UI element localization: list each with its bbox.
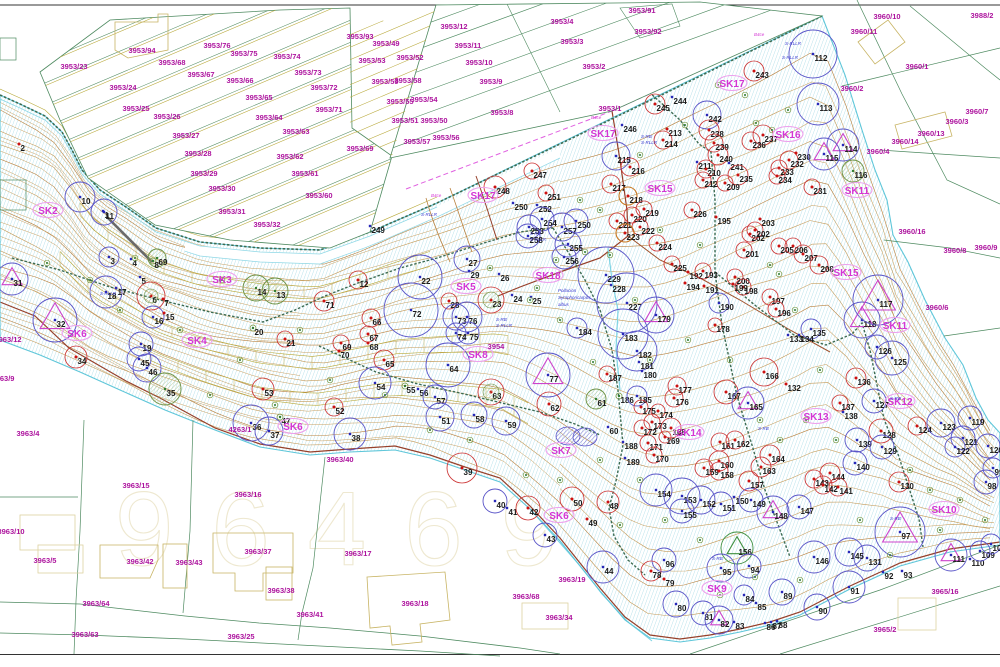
svg-text:SK4: SK4 bbox=[187, 336, 207, 347]
svg-text:3953/69: 3953/69 bbox=[346, 144, 373, 153]
svg-text:24: 24 bbox=[514, 295, 523, 304]
svg-text:3953/72: 3953/72 bbox=[310, 83, 337, 92]
svg-text:66: 66 bbox=[373, 318, 382, 327]
svg-text:36: 36 bbox=[253, 423, 262, 432]
svg-text:164: 164 bbox=[772, 455, 786, 464]
svg-text:213: 213 bbox=[669, 129, 683, 138]
svg-text:3953/63: 3953/63 bbox=[282, 127, 309, 136]
svg-text:256: 256 bbox=[566, 257, 580, 266]
svg-text:176: 176 bbox=[676, 398, 690, 407]
svg-text:146: 146 bbox=[816, 557, 830, 566]
svg-text:S-RLLR: S-RLLR bbox=[785, 41, 802, 46]
svg-text:54: 54 bbox=[377, 383, 386, 392]
svg-text:129: 129 bbox=[884, 447, 898, 456]
svg-text:3953/76: 3953/76 bbox=[203, 41, 230, 50]
svg-text:3963/19: 3963/19 bbox=[558, 575, 585, 584]
svg-text:SK10: SK10 bbox=[931, 505, 956, 516]
svg-text:SK14: SK14 bbox=[676, 428, 701, 439]
svg-text:125: 125 bbox=[894, 358, 908, 367]
svg-text:3953/28: 3953/28 bbox=[184, 149, 211, 158]
svg-text:138: 138 bbox=[845, 412, 859, 421]
svg-text:3953/67: 3953/67 bbox=[187, 70, 214, 79]
svg-text:34: 34 bbox=[78, 357, 87, 366]
svg-text:180: 180 bbox=[644, 371, 658, 380]
svg-text:162: 162 bbox=[737, 440, 751, 449]
svg-text:SK17: SK17 bbox=[470, 191, 495, 202]
svg-text:22: 22 bbox=[422, 277, 431, 286]
svg-text:72: 72 bbox=[413, 310, 422, 319]
svg-text:3953/62: 3953/62 bbox=[276, 152, 303, 161]
svg-text:60: 60 bbox=[610, 427, 619, 436]
svg-text:B4ce: B4ce bbox=[431, 193, 442, 198]
svg-text:3953/8: 3953/8 bbox=[491, 108, 514, 117]
svg-text:250: 250 bbox=[515, 203, 529, 212]
svg-text:117: 117 bbox=[880, 300, 893, 309]
svg-text:76: 76 bbox=[469, 317, 478, 326]
svg-text:3963/40: 3963/40 bbox=[326, 455, 353, 464]
svg-text:70: 70 bbox=[341, 351, 350, 360]
svg-text:228: 228 bbox=[613, 285, 627, 294]
svg-text:3953/60: 3953/60 bbox=[305, 191, 332, 200]
svg-text:3953/11: 3953/11 bbox=[455, 41, 482, 50]
svg-text:93: 93 bbox=[904, 571, 913, 580]
svg-text:209: 209 bbox=[727, 183, 741, 192]
svg-text:3963/9: 3963/9 bbox=[0, 374, 14, 383]
svg-text:212: 212 bbox=[705, 180, 719, 189]
svg-text:12: 12 bbox=[360, 280, 369, 289]
svg-text:114: 114 bbox=[845, 145, 858, 154]
svg-text:16: 16 bbox=[155, 317, 164, 326]
svg-text:SK16: SK16 bbox=[775, 130, 800, 141]
svg-text:249: 249 bbox=[372, 226, 386, 235]
svg-text:74: 74 bbox=[458, 333, 467, 342]
svg-text:SK3: SK3 bbox=[212, 275, 232, 286]
svg-text:3953/75: 3953/75 bbox=[230, 49, 257, 58]
svg-text:3963/16: 3963/16 bbox=[234, 490, 261, 499]
svg-text:3963/37: 3963/37 bbox=[244, 547, 271, 556]
svg-text:3963/42: 3963/42 bbox=[126, 557, 153, 566]
svg-text:3954: 3954 bbox=[488, 342, 506, 351]
svg-text:SK6: SK6 bbox=[283, 422, 303, 433]
svg-text:187: 187 bbox=[609, 374, 623, 383]
svg-text:83: 83 bbox=[736, 622, 745, 631]
svg-text:SK15: SK15 bbox=[833, 268, 858, 279]
svg-text:3953/66: 3953/66 bbox=[226, 76, 253, 85]
svg-text:123: 123 bbox=[943, 423, 957, 432]
svg-text:157: 157 bbox=[751, 481, 765, 490]
svg-text:3953/59: 3953/59 bbox=[371, 77, 398, 86]
svg-text:3953/91: 3953/91 bbox=[628, 6, 655, 15]
svg-text:130: 130 bbox=[901, 482, 915, 491]
svg-text:3953/51: 3953/51 bbox=[391, 116, 418, 125]
svg-text:177: 177 bbox=[679, 386, 693, 395]
svg-text:3953/56: 3953/56 bbox=[432, 133, 459, 142]
svg-text:108: 108 bbox=[993, 544, 1000, 553]
svg-text:SK15: SK15 bbox=[647, 184, 672, 195]
svg-text:3960/11: 3960/11 bbox=[851, 27, 878, 36]
svg-text:3960/13: 3960/13 bbox=[917, 129, 944, 138]
svg-text:SK18: SK18 bbox=[535, 271, 560, 282]
svg-text:3953/53: 3953/53 bbox=[358, 56, 385, 65]
svg-text:216: 216 bbox=[632, 167, 646, 176]
svg-text:SK9: SK9 bbox=[707, 584, 727, 595]
svg-text:215: 215 bbox=[618, 156, 632, 165]
svg-text:140: 140 bbox=[857, 463, 871, 472]
svg-text:S-RB: S-RB bbox=[496, 317, 507, 322]
svg-text:42: 42 bbox=[530, 508, 539, 517]
svg-text:3960/10: 3960/10 bbox=[873, 12, 900, 21]
svg-text:3963/63: 3963/63 bbox=[71, 630, 98, 639]
svg-text:3963/18: 3963/18 bbox=[401, 599, 428, 608]
svg-text:3953/3: 3953/3 bbox=[561, 37, 584, 46]
svg-text:3963/25: 3963/25 bbox=[227, 632, 254, 641]
svg-text:98: 98 bbox=[988, 482, 997, 491]
svg-text:69: 69 bbox=[159, 258, 168, 267]
svg-text:151: 151 bbox=[723, 504, 737, 513]
svg-text:3953/92: 3953/92 bbox=[634, 27, 661, 36]
svg-text:245: 245 bbox=[657, 104, 671, 113]
svg-text:S-RB: S-RB bbox=[641, 134, 652, 139]
svg-text:3953/50: 3953/50 bbox=[420, 116, 447, 125]
svg-text:223: 223 bbox=[627, 233, 641, 242]
svg-text:214: 214 bbox=[665, 140, 679, 149]
svg-text:S-RLLR: S-RLLR bbox=[641, 140, 658, 145]
svg-text:49: 49 bbox=[589, 519, 598, 528]
svg-text:SK7: SK7 bbox=[551, 446, 571, 457]
svg-text:64: 64 bbox=[450, 365, 459, 374]
svg-text:3963/43: 3963/43 bbox=[175, 558, 202, 567]
svg-text:190: 190 bbox=[721, 303, 735, 312]
svg-text:250: 250 bbox=[578, 221, 592, 230]
svg-text:3960/3: 3960/3 bbox=[946, 117, 969, 126]
svg-text:247: 247 bbox=[534, 171, 548, 180]
svg-text:26: 26 bbox=[501, 274, 510, 283]
svg-text:95: 95 bbox=[723, 568, 732, 577]
svg-text:92: 92 bbox=[885, 572, 894, 581]
svg-text:3963/15: 3963/15 bbox=[122, 481, 149, 490]
svg-text:183: 183 bbox=[625, 334, 639, 343]
svg-text:3953/26: 3953/26 bbox=[153, 112, 180, 121]
svg-text:3953/23: 3953/23 bbox=[60, 62, 87, 71]
svg-text:94: 94 bbox=[751, 566, 760, 575]
svg-text:163: 163 bbox=[763, 467, 777, 476]
svg-text:155: 155 bbox=[684, 511, 698, 520]
svg-text:S-RB: S-RB bbox=[890, 516, 901, 521]
svg-text:159: 159 bbox=[706, 468, 720, 477]
svg-text:S-RB: S-RB bbox=[712, 556, 723, 561]
svg-text:218: 218 bbox=[630, 196, 644, 205]
svg-text:3953/9: 3953/9 bbox=[480, 77, 503, 86]
svg-text:207: 207 bbox=[805, 254, 819, 263]
svg-text:112: 112 bbox=[815, 54, 828, 63]
svg-text:SK6: SK6 bbox=[67, 329, 87, 340]
svg-text:167: 167 bbox=[728, 392, 742, 401]
svg-text:3963/38: 3963/38 bbox=[267, 586, 294, 595]
svg-text:181: 181 bbox=[641, 362, 655, 371]
svg-text:144: 144 bbox=[832, 473, 846, 482]
svg-text:202: 202 bbox=[757, 230, 771, 239]
svg-text:137: 137 bbox=[842, 403, 856, 412]
svg-text:222: 222 bbox=[642, 227, 656, 236]
svg-text:20: 20 bbox=[255, 328, 264, 337]
svg-text:149: 149 bbox=[753, 500, 767, 509]
svg-text:25: 25 bbox=[533, 297, 542, 306]
svg-text:3960/9: 3960/9 bbox=[975, 243, 998, 252]
svg-text:3963/34: 3963/34 bbox=[545, 613, 573, 622]
svg-text:SK6: SK6 bbox=[549, 511, 569, 522]
svg-text:220: 220 bbox=[634, 215, 648, 224]
svg-text:21: 21 bbox=[287, 339, 296, 348]
svg-text:39: 39 bbox=[464, 468, 473, 477]
svg-text:195: 195 bbox=[718, 217, 732, 226]
svg-text:3953/52: 3953/52 bbox=[396, 53, 423, 62]
svg-text:57: 57 bbox=[437, 397, 446, 406]
svg-text:43: 43 bbox=[547, 535, 556, 544]
svg-text:96: 96 bbox=[666, 560, 675, 569]
svg-text:120: 120 bbox=[990, 446, 1000, 455]
svg-text:3953/49: 3953/49 bbox=[372, 39, 399, 48]
svg-text:78: 78 bbox=[653, 571, 662, 580]
svg-text:254: 254 bbox=[544, 219, 558, 228]
svg-text:3960/4: 3960/4 bbox=[867, 147, 891, 156]
svg-text:3963/12: 3963/12 bbox=[0, 335, 22, 344]
svg-text:53: 53 bbox=[265, 389, 274, 398]
svg-text:3953/55: 3953/55 bbox=[386, 97, 413, 106]
svg-text:11: 11 bbox=[106, 212, 115, 221]
svg-text:65: 65 bbox=[386, 360, 395, 369]
svg-text:51: 51 bbox=[442, 417, 451, 426]
svg-text:3953/24: 3953/24 bbox=[109, 83, 137, 92]
svg-text:44: 44 bbox=[605, 567, 614, 576]
svg-text:126: 126 bbox=[879, 347, 893, 356]
svg-text:3953/1: 3953/1 bbox=[599, 104, 622, 113]
svg-text:SK8: SK8 bbox=[468, 350, 488, 361]
svg-text:B4ce: B4ce bbox=[591, 115, 602, 120]
svg-text:3953/54: 3953/54 bbox=[410, 95, 438, 104]
svg-text:153: 153 bbox=[684, 496, 698, 505]
svg-text:Pollacion: Pollacion bbox=[558, 288, 577, 293]
svg-text:148: 148 bbox=[775, 512, 789, 521]
svg-text:170: 170 bbox=[656, 455, 670, 464]
svg-text:226: 226 bbox=[694, 210, 708, 219]
svg-text:79: 79 bbox=[666, 579, 675, 588]
svg-text:3953/93: 3953/93 bbox=[346, 32, 373, 41]
svg-text:3963/10: 3963/10 bbox=[0, 527, 25, 536]
svg-text:SK2: SK2 bbox=[38, 206, 58, 217]
svg-text:147: 147 bbox=[801, 507, 815, 516]
svg-text:3953/25: 3953/25 bbox=[122, 104, 149, 113]
svg-text:248: 248 bbox=[497, 187, 511, 196]
svg-text:S-RLLR: S-RLLR bbox=[421, 212, 438, 217]
svg-text:145: 145 bbox=[851, 552, 865, 561]
svg-text:35: 35 bbox=[167, 389, 176, 398]
svg-text:3963/5: 3963/5 bbox=[34, 556, 57, 565]
svg-text:3953/4: 3953/4 bbox=[551, 17, 575, 26]
svg-text:4263/1: 4263/1 bbox=[229, 425, 252, 434]
svg-text:2: 2 bbox=[21, 144, 26, 153]
svg-text:55: 55 bbox=[407, 386, 416, 395]
svg-text:113: 113 bbox=[820, 104, 833, 113]
svg-text:158: 158 bbox=[721, 471, 735, 480]
svg-text:225: 225 bbox=[674, 264, 688, 273]
svg-text:S-RLLR: S-RLLR bbox=[530, 237, 547, 242]
svg-text:3953/30: 3953/30 bbox=[208, 184, 235, 193]
svg-text:150: 150 bbox=[736, 497, 750, 506]
svg-text:77: 77 bbox=[550, 375, 559, 384]
svg-text:89: 89 bbox=[784, 592, 793, 601]
svg-text:3953/74: 3953/74 bbox=[273, 52, 301, 61]
svg-text:224: 224 bbox=[659, 243, 673, 252]
svg-text:135: 135 bbox=[813, 329, 827, 338]
svg-text:80: 80 bbox=[678, 604, 687, 613]
svg-text:251: 251 bbox=[548, 193, 562, 202]
svg-text:182: 182 bbox=[639, 351, 653, 360]
svg-text:71: 71 bbox=[326, 301, 335, 310]
svg-text:82: 82 bbox=[721, 620, 730, 629]
svg-text:192: 192 bbox=[690, 272, 704, 281]
svg-text:32: 32 bbox=[57, 320, 66, 329]
svg-text:131: 131 bbox=[869, 558, 883, 567]
svg-text:189: 189 bbox=[627, 458, 641, 467]
svg-text:141: 141 bbox=[840, 487, 854, 496]
svg-text:3953/57: 3953/57 bbox=[403, 137, 430, 146]
svg-text:3963/17: 3963/17 bbox=[344, 549, 371, 558]
svg-text:3953/10: 3953/10 bbox=[465, 58, 492, 67]
svg-text:3988/2: 3988/2 bbox=[971, 11, 994, 20]
svg-text:3960/16: 3960/16 bbox=[898, 227, 925, 236]
svg-text:SK17: SK17 bbox=[590, 129, 615, 140]
svg-text:191: 191 bbox=[706, 286, 720, 295]
svg-text:243: 243 bbox=[756, 71, 770, 80]
svg-text:3963/41: 3963/41 bbox=[296, 610, 323, 619]
svg-text:199: 199 bbox=[735, 284, 749, 293]
svg-text:166: 166 bbox=[766, 372, 780, 381]
svg-text:3953/29: 3953/29 bbox=[190, 169, 217, 178]
svg-text:37: 37 bbox=[271, 431, 280, 440]
svg-text:246: 246 bbox=[624, 125, 638, 134]
svg-text:99: 99 bbox=[995, 468, 1000, 477]
svg-text:56: 56 bbox=[420, 389, 429, 398]
svg-text:178: 178 bbox=[717, 325, 731, 334]
svg-text:235: 235 bbox=[740, 175, 754, 184]
svg-text:231: 231 bbox=[814, 187, 828, 196]
svg-text:3953/32: 3953/32 bbox=[253, 220, 280, 229]
svg-text:S-RLLR: S-RLLR bbox=[496, 323, 513, 328]
svg-text:244: 244 bbox=[674, 97, 688, 106]
svg-text:27: 27 bbox=[469, 259, 478, 268]
svg-text:194: 194 bbox=[687, 283, 701, 292]
svg-text:45: 45 bbox=[141, 359, 150, 368]
svg-text:185: 185 bbox=[639, 396, 653, 405]
svg-text:97: 97 bbox=[902, 532, 911, 541]
svg-text:S-RB: S-RB bbox=[530, 231, 541, 236]
svg-text:255: 255 bbox=[570, 244, 584, 253]
svg-text:3963/4: 3963/4 bbox=[17, 429, 41, 438]
svg-text:165: 165 bbox=[750, 403, 764, 412]
svg-text:188: 188 bbox=[625, 442, 639, 451]
svg-text:241: 241 bbox=[731, 163, 745, 172]
svg-text:172: 172 bbox=[644, 428, 658, 437]
svg-text:13: 13 bbox=[277, 291, 286, 300]
svg-text:196: 196 bbox=[778, 309, 792, 318]
svg-text:3953/65: 3953/65 bbox=[245, 93, 272, 102]
svg-text:119: 119 bbox=[972, 418, 985, 427]
svg-text:111: 111 bbox=[953, 555, 966, 564]
svg-text:201: 201 bbox=[746, 250, 760, 259]
svg-text:3960/6: 3960/6 bbox=[926, 303, 949, 312]
svg-text:8: 8 bbox=[155, 261, 160, 270]
svg-text:S-RLLR: S-RLLR bbox=[100, 291, 117, 296]
svg-text:7: 7 bbox=[165, 299, 170, 308]
svg-text:48: 48 bbox=[610, 502, 619, 511]
svg-text:75: 75 bbox=[470, 333, 479, 342]
svg-text:52: 52 bbox=[336, 407, 345, 416]
svg-text:116: 116 bbox=[855, 171, 868, 180]
svg-text:10: 10 bbox=[82, 197, 91, 206]
svg-text:B4ce: B4ce bbox=[754, 32, 765, 37]
svg-text:193: 193 bbox=[705, 271, 719, 280]
svg-text:229: 229 bbox=[608, 275, 622, 284]
svg-text:134: 134 bbox=[801, 335, 815, 344]
svg-text:3965/2: 3965/2 bbox=[874, 625, 897, 634]
svg-text:3953/61: 3953/61 bbox=[291, 169, 318, 178]
svg-text:132: 132 bbox=[788, 384, 802, 393]
svg-text:15: 15 bbox=[166, 313, 175, 322]
svg-text:184: 184 bbox=[579, 328, 593, 337]
svg-text:67: 67 bbox=[370, 334, 379, 343]
svg-text:31: 31 bbox=[14, 279, 23, 288]
svg-text:SK13: SK13 bbox=[803, 412, 828, 423]
svg-text:115: 115 bbox=[826, 154, 839, 163]
svg-text:3960/8: 3960/8 bbox=[944, 246, 967, 255]
svg-text:SK11: SK11 bbox=[845, 186, 870, 197]
svg-text:3953/71: 3953/71 bbox=[315, 105, 342, 114]
svg-text:217: 217 bbox=[613, 184, 627, 193]
svg-text:61: 61 bbox=[598, 399, 607, 408]
svg-text:90: 90 bbox=[819, 607, 828, 616]
svg-text:59: 59 bbox=[508, 421, 517, 430]
svg-text:3963/64: 3963/64 bbox=[82, 599, 110, 608]
svg-text:SK11: SK11 bbox=[883, 321, 908, 332]
svg-text:3960/2: 3960/2 bbox=[841, 84, 864, 93]
svg-text:236: 236 bbox=[753, 141, 767, 150]
svg-text:Symphoricarpos: Symphoricarpos bbox=[558, 295, 591, 300]
svg-text:219: 219 bbox=[646, 209, 660, 218]
svg-text:3960/14: 3960/14 bbox=[891, 137, 919, 146]
svg-text:albus: albus bbox=[558, 302, 570, 307]
svg-text:136: 136 bbox=[858, 378, 872, 387]
svg-text:3965/16: 3965/16 bbox=[931, 587, 958, 596]
svg-text:3953/64: 3953/64 bbox=[255, 113, 283, 122]
svg-text:3953/73: 3953/73 bbox=[294, 68, 321, 77]
svg-text:252: 252 bbox=[539, 205, 553, 214]
svg-text:3963/68: 3963/68 bbox=[512, 592, 539, 601]
svg-text:68: 68 bbox=[370, 343, 379, 352]
svg-text:58: 58 bbox=[476, 415, 485, 424]
svg-text:28: 28 bbox=[451, 301, 460, 310]
svg-text:62: 62 bbox=[551, 404, 560, 413]
svg-text:50: 50 bbox=[574, 499, 583, 508]
svg-text:S-RB: S-RB bbox=[890, 396, 901, 401]
svg-text:234: 234 bbox=[779, 176, 793, 185]
svg-text:40: 40 bbox=[497, 501, 506, 510]
svg-text:38: 38 bbox=[352, 434, 361, 443]
svg-text:85: 85 bbox=[758, 603, 767, 612]
svg-text:17: 17 bbox=[118, 288, 127, 297]
svg-text:S-RB: S-RB bbox=[758, 426, 769, 431]
svg-text:S-RLLR: S-RLLR bbox=[782, 55, 799, 60]
svg-text:SK17: SK17 bbox=[719, 79, 744, 90]
